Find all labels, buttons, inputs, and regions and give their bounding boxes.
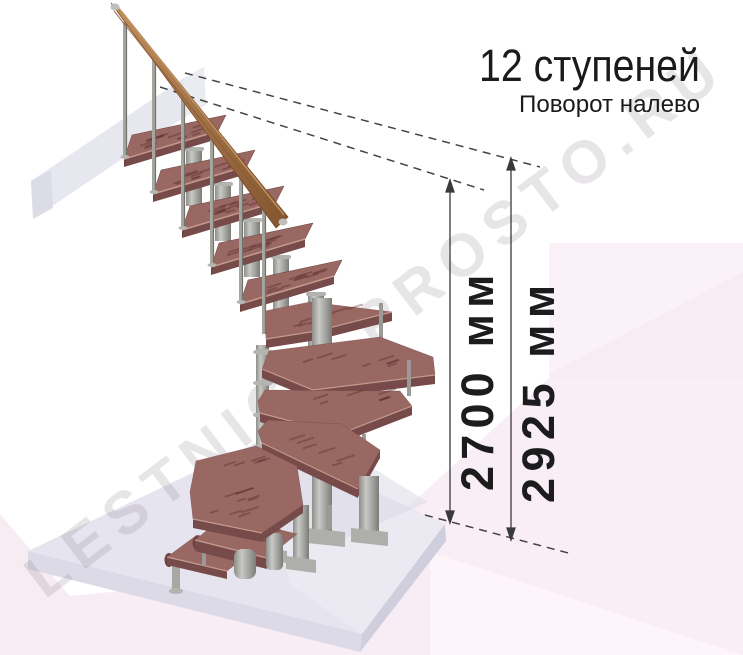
svg-text:2700 мм: 2700 мм — [452, 268, 503, 491]
svg-text:Поворот налево: Поворот налево — [519, 91, 700, 118]
svg-text:12 ступеней: 12 ступеней — [479, 40, 700, 91]
svg-text:2925 мм: 2925 мм — [513, 278, 564, 503]
